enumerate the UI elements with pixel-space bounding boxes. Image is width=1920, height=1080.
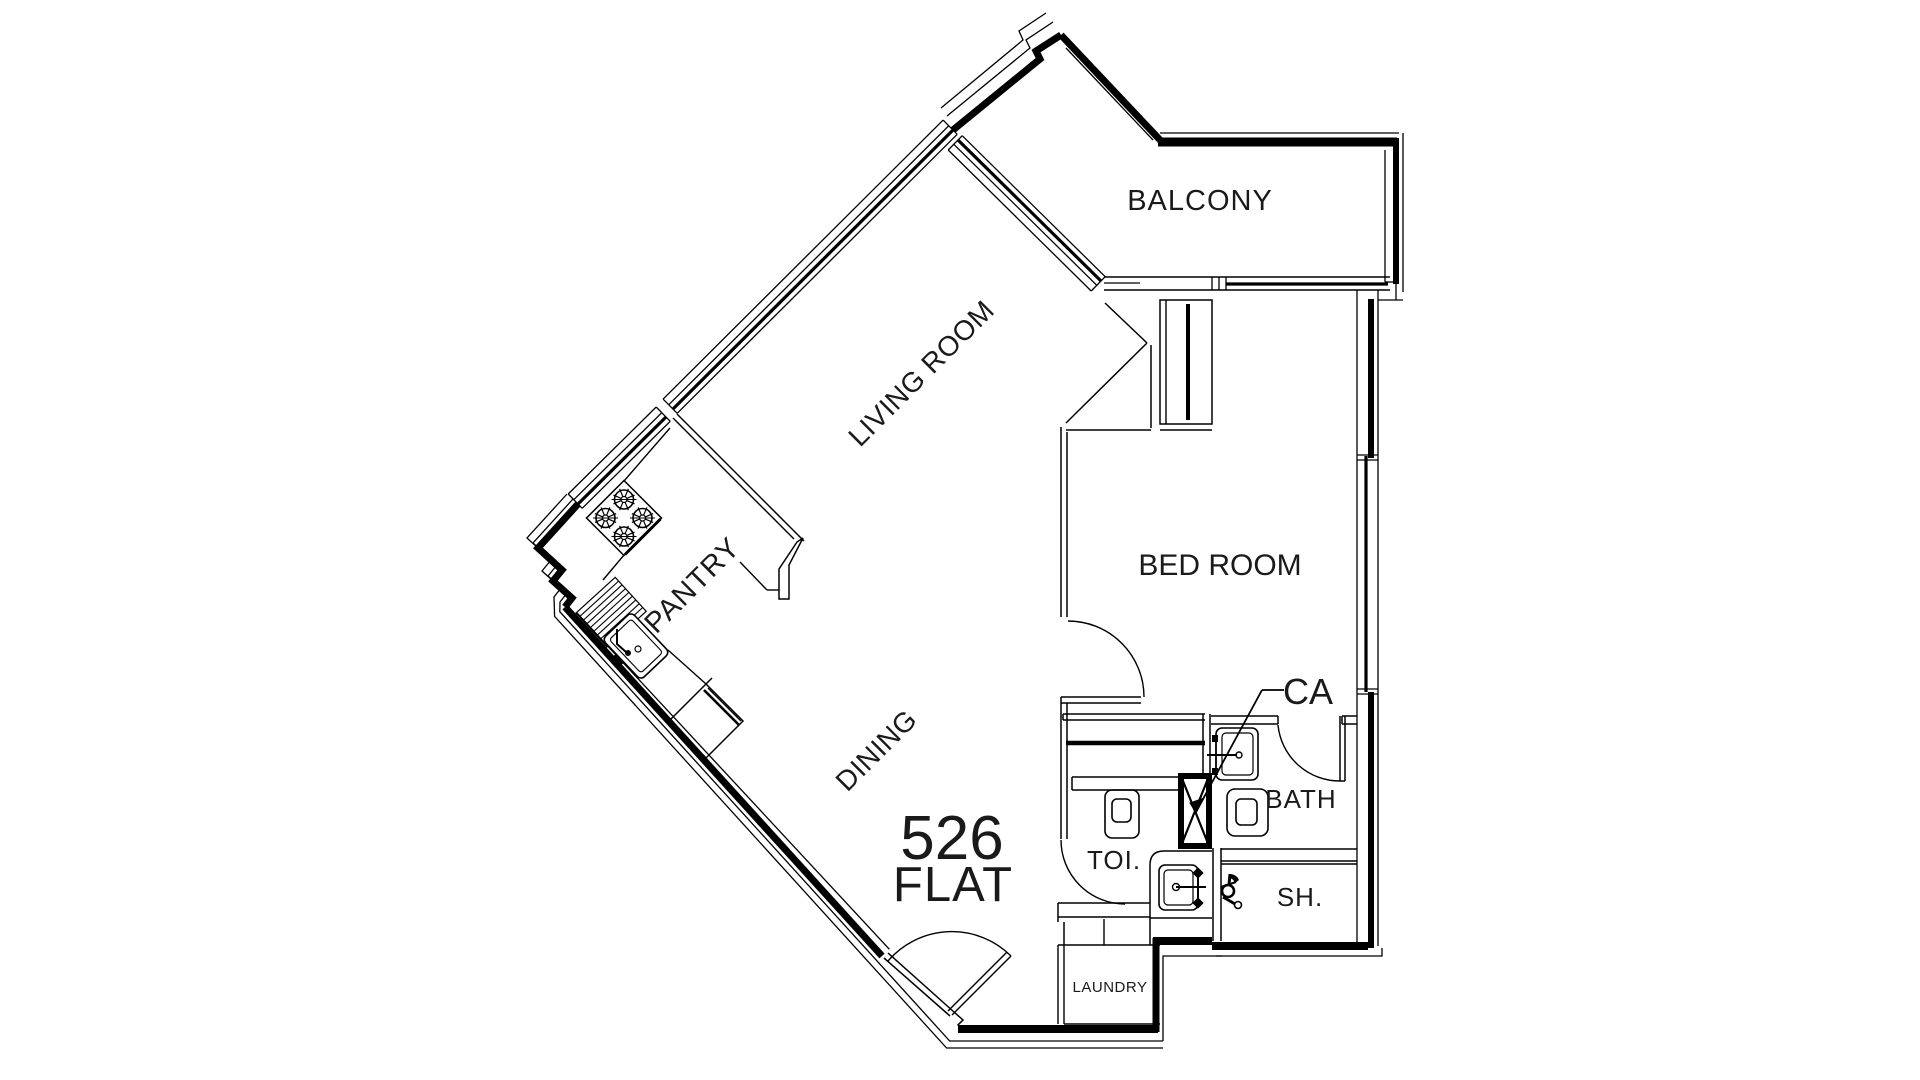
svg-text:BALCONY: BALCONY bbox=[1127, 185, 1273, 217]
svg-text:PANTRY: PANTRY bbox=[639, 532, 747, 640]
svg-text:DINING: DINING bbox=[830, 704, 923, 797]
svg-text:CA: CA bbox=[1283, 671, 1333, 712]
svg-text:BED ROOM: BED ROOM bbox=[1138, 549, 1301, 582]
svg-text:SH.: SH. bbox=[1277, 882, 1323, 912]
svg-text:FLAT: FLAT bbox=[893, 858, 1013, 912]
svg-text:LAUNDRY: LAUNDRY bbox=[1073, 979, 1148, 996]
svg-text:TOI.: TOI. bbox=[1087, 845, 1141, 875]
svg-text:BATH: BATH bbox=[1265, 784, 1336, 814]
svg-text:LIVING ROOM: LIVING ROOM bbox=[842, 294, 1000, 452]
